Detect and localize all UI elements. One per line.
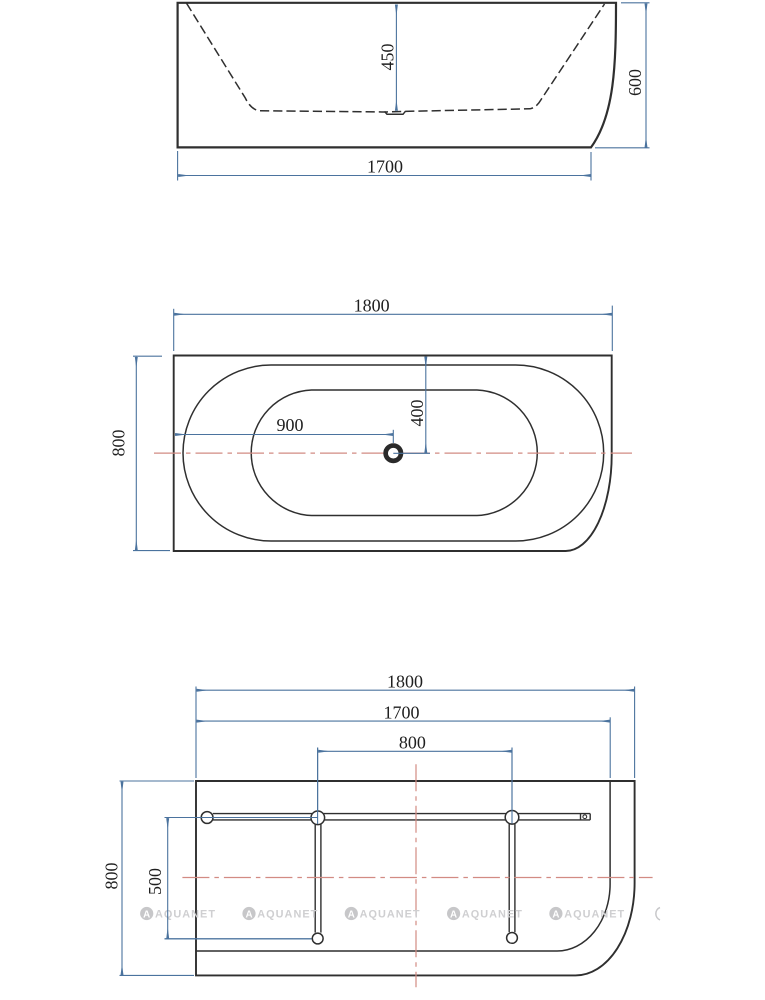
svg-text:1700: 1700 (384, 702, 420, 722)
svg-text:A: A (245, 909, 252, 920)
svg-text:900: 900 (277, 415, 304, 435)
svg-text:AQUANET: AQUANET (462, 908, 523, 920)
svg-text:450: 450 (378, 44, 398, 71)
svg-text:AQUANET: AQUANET (155, 908, 216, 920)
svg-text:500: 500 (145, 868, 165, 895)
svg-text:800: 800 (109, 430, 129, 457)
svg-text:800: 800 (102, 863, 122, 890)
svg-text:1700: 1700 (367, 156, 403, 176)
svg-text:A: A (552, 909, 559, 920)
svg-text:AQUANET: AQUANET (360, 908, 421, 920)
svg-text:800: 800 (399, 733, 426, 753)
svg-text:A: A (348, 909, 355, 920)
svg-text:1800: 1800 (387, 671, 423, 691)
svg-text:400: 400 (407, 400, 427, 427)
svg-text:1800: 1800 (354, 296, 390, 316)
svg-text:A: A (143, 909, 150, 920)
svg-text:A: A (450, 909, 457, 920)
svg-text:AQUANET: AQUANET (564, 908, 625, 920)
svg-text:600: 600 (625, 69, 645, 96)
svg-text:AQUANET: AQUANET (257, 908, 318, 920)
